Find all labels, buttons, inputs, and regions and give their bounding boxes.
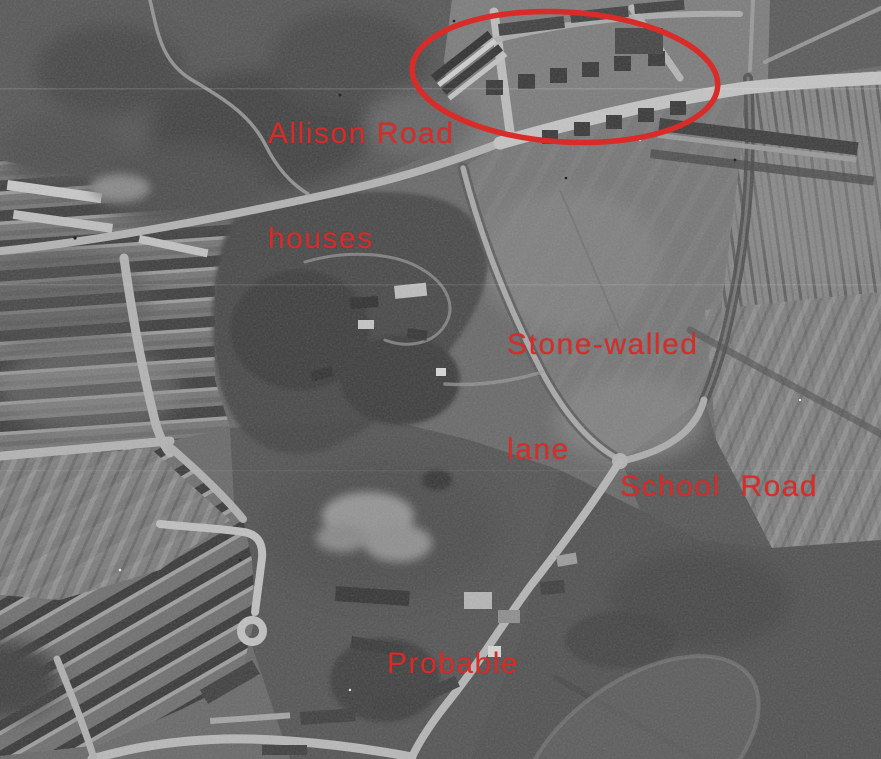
photo-grain [0,0,881,759]
annotated-aerial-photo: Allison Road houses Stone-walled lane Sc… [0,0,881,759]
aerial-photograph [0,0,881,759]
